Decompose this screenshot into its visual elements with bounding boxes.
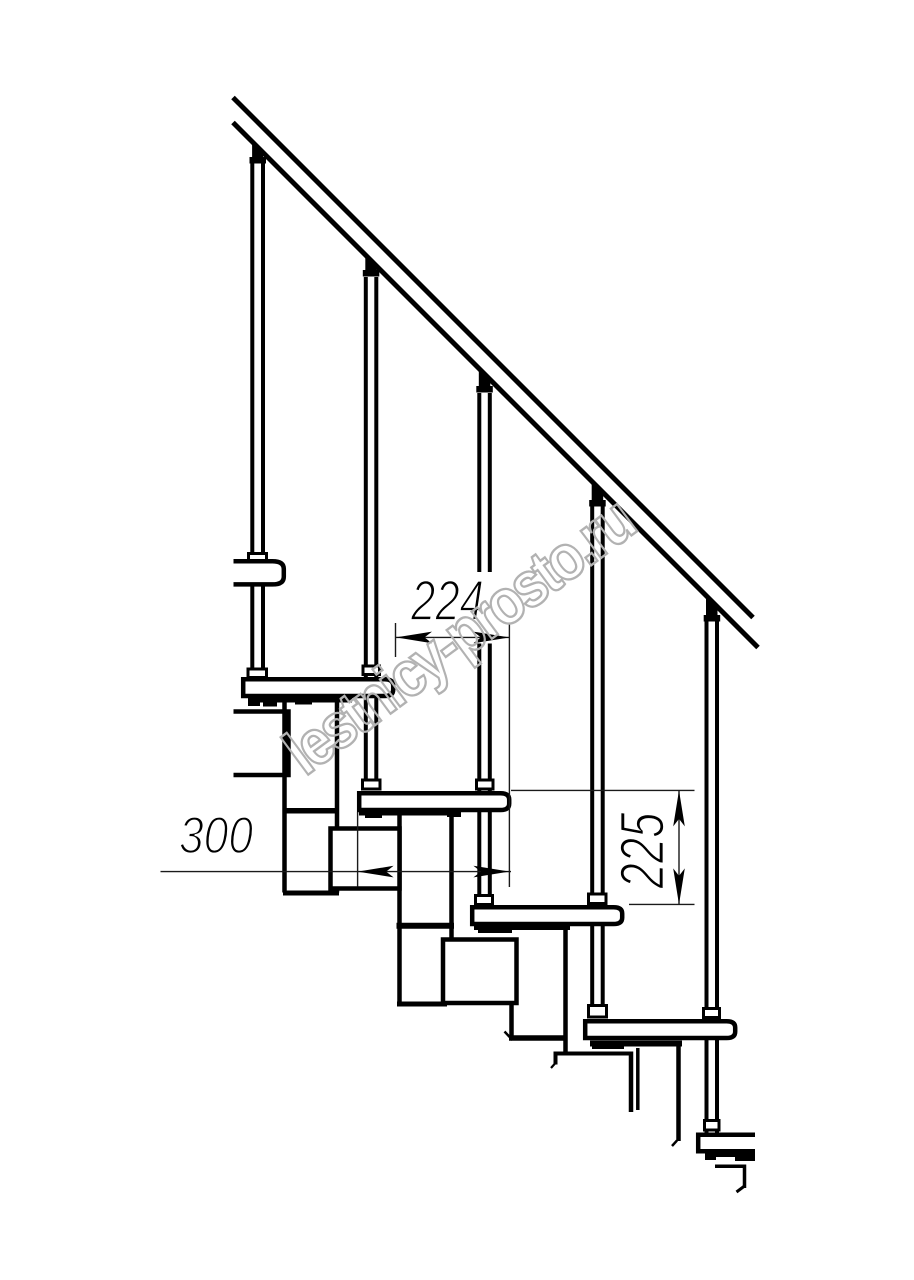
svg-text:225: 225 bbox=[609, 812, 678, 889]
svg-text:300: 300 bbox=[179, 807, 253, 865]
